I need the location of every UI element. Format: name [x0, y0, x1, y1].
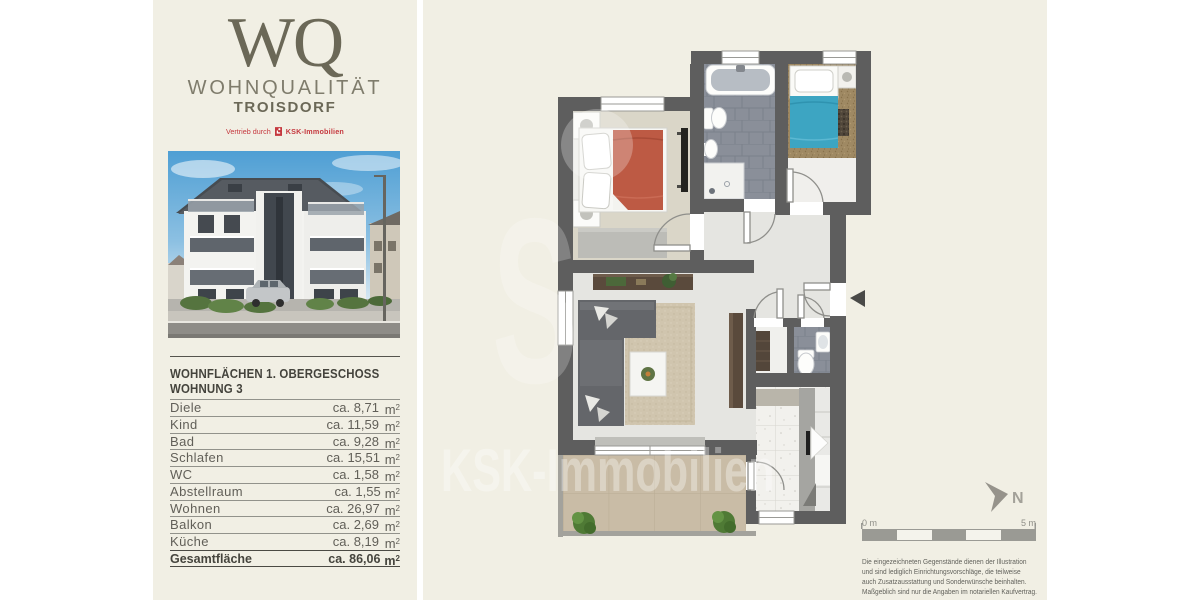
svg-text:KSK-Immobilien: KSK-Immobilien: [441, 438, 775, 505]
svg-text:S: S: [492, 170, 578, 433]
svg-text:N: N: [1012, 490, 1024, 507]
